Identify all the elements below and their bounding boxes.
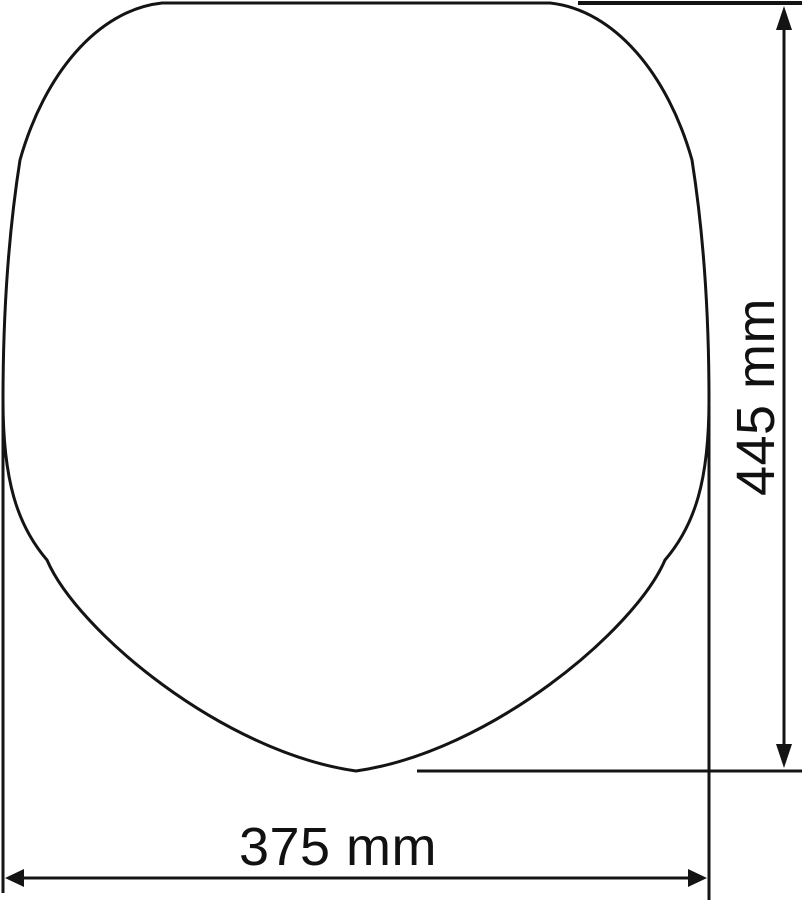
width-dimension-label: 375 mm: [239, 820, 437, 874]
height-dimension-label: 445 mm: [729, 298, 783, 496]
arrow-left-icon: [5, 869, 24, 887]
arrow-down-icon: [776, 744, 792, 768]
seat-outline: [3, 3, 709, 771]
arrow-right-icon: [688, 869, 707, 887]
arrow-up-icon: [776, 6, 792, 30]
drawing-canvas: [0, 0, 802, 900]
dimension-drawing: 445 mm 375 mm: [0, 0, 802, 900]
